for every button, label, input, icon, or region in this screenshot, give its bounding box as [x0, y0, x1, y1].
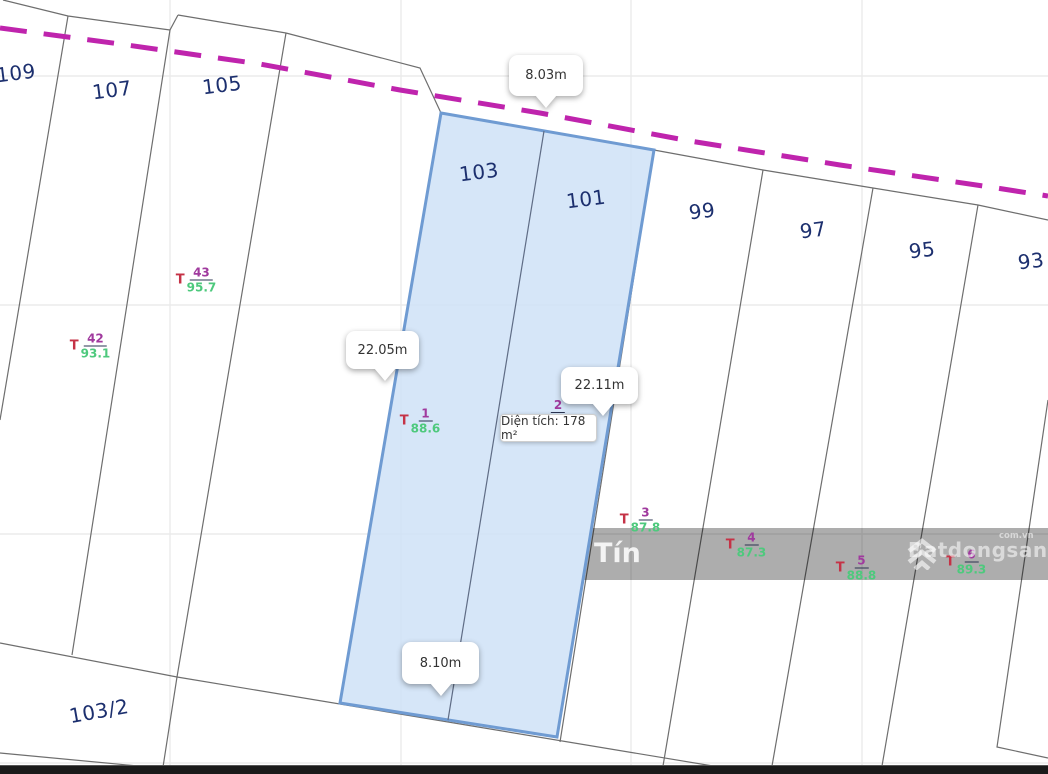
measurement-tooltip-left[interactable]: 22.05m — [346, 331, 419, 369]
map-canvas[interactable]: 109 107 105 103 101 99 97 95 93 103/2 T … — [0, 0, 1048, 774]
plot-label-93: 93 — [1016, 247, 1045, 274]
watermark-brand-suffix: com.vn — [999, 531, 1034, 541]
survey-label-3: T 387.8 — [620, 507, 660, 534]
watermark-tin: Tín — [594, 538, 641, 569]
plot-label-95: 95 — [907, 236, 936, 263]
plot-label-103: 103 — [458, 158, 500, 187]
bottom-bar — [0, 765, 1048, 774]
survey-label-1: T 188.6 — [400, 408, 440, 435]
survey-label-5: T 588.8 — [836, 555, 876, 582]
measurement-tooltip-bottom[interactable]: 8.10m — [402, 642, 479, 684]
survey-label-42: T 4293.1 — [70, 333, 110, 360]
measurement-tooltip-top[interactable]: 8.03m — [509, 55, 583, 96]
plot-label-109: 109 — [0, 59, 37, 88]
plot-label-97: 97 — [798, 216, 827, 243]
survey-label-43: T 4395.7 — [176, 267, 216, 294]
survey-label-4: T 487.3 — [726, 532, 766, 559]
measurement-tooltip-right[interactable]: 22.11m — [561, 367, 638, 404]
area-tooltip[interactable]: Diện tích: 178 m² — [500, 414, 597, 442]
plot-label-105: 105 — [201, 71, 243, 100]
watermark-brand: Batdongsan com.vn — [904, 538, 1048, 562]
parcel-map[interactable] — [0, 0, 1048, 774]
plot-label-101: 101 — [565, 185, 607, 214]
bottom-bar-edge — [0, 765, 1048, 766]
plot-label-99: 99 — [687, 197, 716, 224]
plot-label-107: 107 — [91, 76, 133, 105]
